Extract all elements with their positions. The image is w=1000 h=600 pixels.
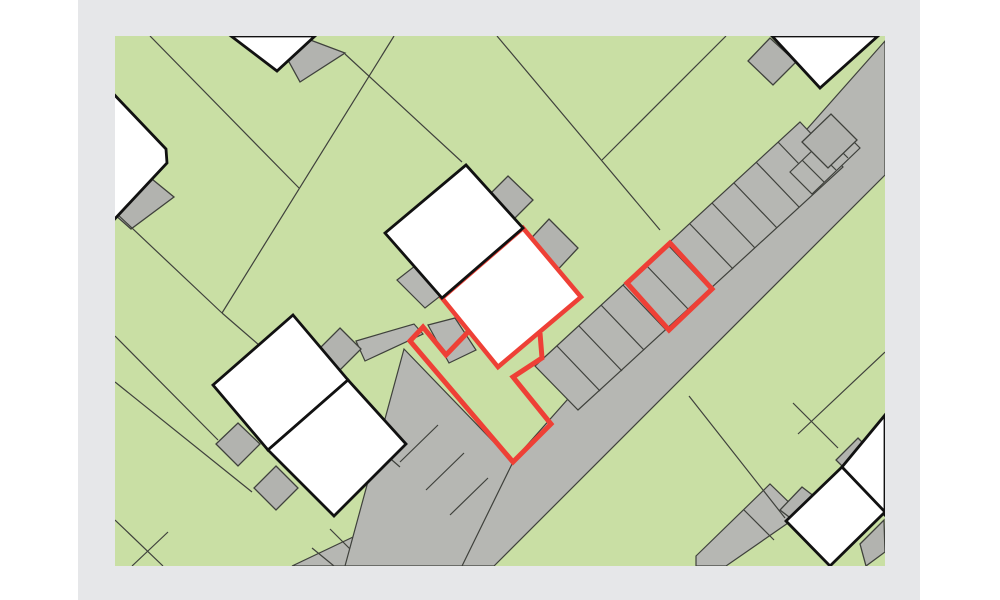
garage-row-bottom-right — [696, 484, 801, 566]
parcel-line — [602, 36, 726, 160]
parcel-line — [345, 54, 462, 162]
parcel-line — [689, 396, 785, 518]
parcel-line — [132, 532, 168, 566]
parcel-line — [115, 212, 222, 313]
parcel-line — [798, 352, 885, 434]
cadastral-map-svg[interactable] — [115, 36, 885, 566]
parcel-line — [115, 336, 218, 440]
parcel-line — [793, 403, 838, 448]
cadastral-map[interactable] — [115, 36, 885, 566]
